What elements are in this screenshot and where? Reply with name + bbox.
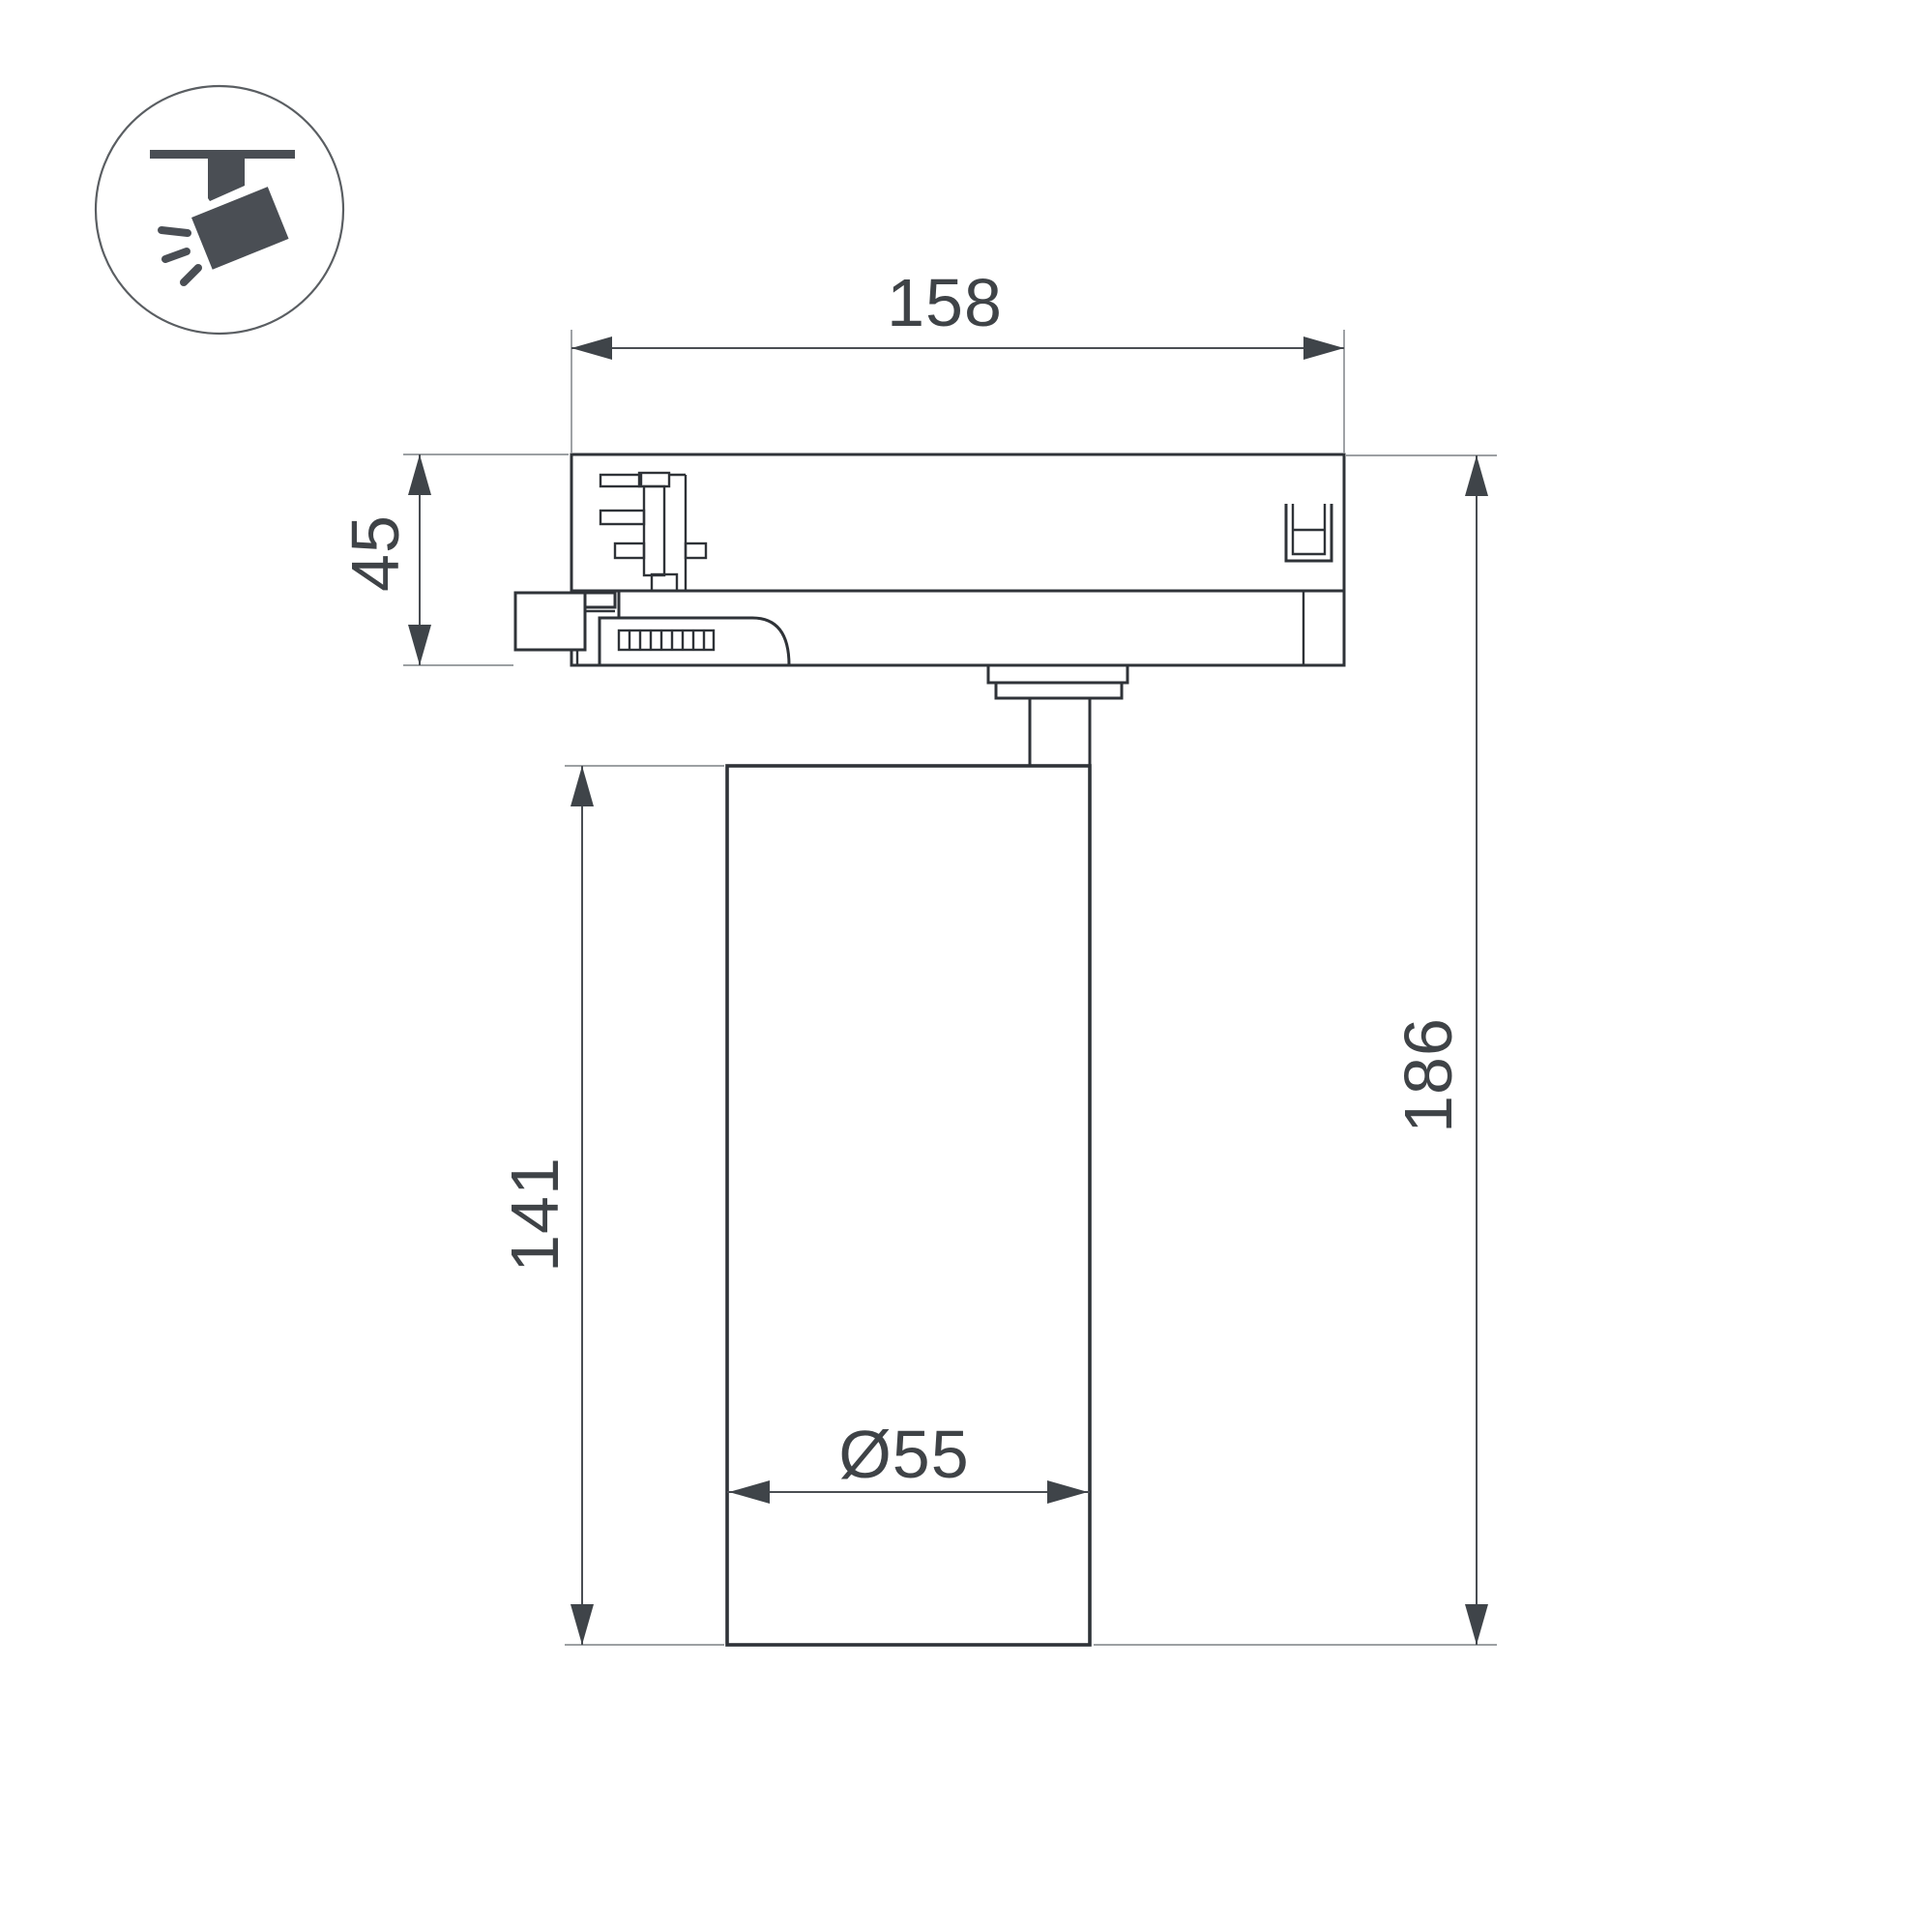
latch-box [515, 593, 585, 650]
latch-tab [585, 593, 615, 607]
dim-label-total-height: 186 [1390, 1017, 1466, 1133]
mount-stem [988, 665, 1127, 766]
arrowhead-up [571, 766, 594, 806]
locking-latch [515, 592, 789, 665]
arrowhead-left [571, 337, 612, 360]
arrowhead-down [1465, 1604, 1488, 1645]
stem-step-1 [988, 665, 1127, 683]
adapter-upper-box [571, 454, 1344, 591]
arrowhead-down [571, 1604, 594, 1645]
dim-label-width: 158 [887, 265, 1003, 340]
grip-ribs [619, 630, 714, 650]
arrowhead-up [408, 454, 431, 495]
lamp-body [727, 766, 1090, 1645]
dimension-width-158: 158 [571, 265, 1344, 453]
dimension-body-height-141: 141 [497, 766, 724, 1645]
icon-light-ray [161, 230, 188, 233]
adapter-lower-plate [571, 591, 1344, 665]
dim-label-body-height: 141 [497, 1156, 572, 1273]
arrowhead-down [408, 625, 431, 665]
dim-label-adapter-height: 45 [337, 514, 413, 592]
stem-column [1030, 698, 1090, 766]
track-spotlight-icon [96, 86, 343, 334]
contact-assembly [600, 473, 706, 591]
arrowhead-up [1465, 455, 1488, 496]
dim-label-diameter: Ø55 [838, 1417, 969, 1492]
track-adapter [515, 454, 1344, 665]
dimension-total-height-186: 186 [1094, 455, 1497, 1645]
retaining-bracket [1286, 504, 1332, 561]
technical-drawing-page: 158 45 141 186 Ø55 [0, 0, 1932, 1932]
drawing-svg: 158 45 141 186 Ø55 [0, 0, 1932, 1932]
icon-track-bar [150, 150, 295, 159]
stem-step-2 [996, 683, 1122, 698]
arrowhead-right [1303, 337, 1344, 360]
